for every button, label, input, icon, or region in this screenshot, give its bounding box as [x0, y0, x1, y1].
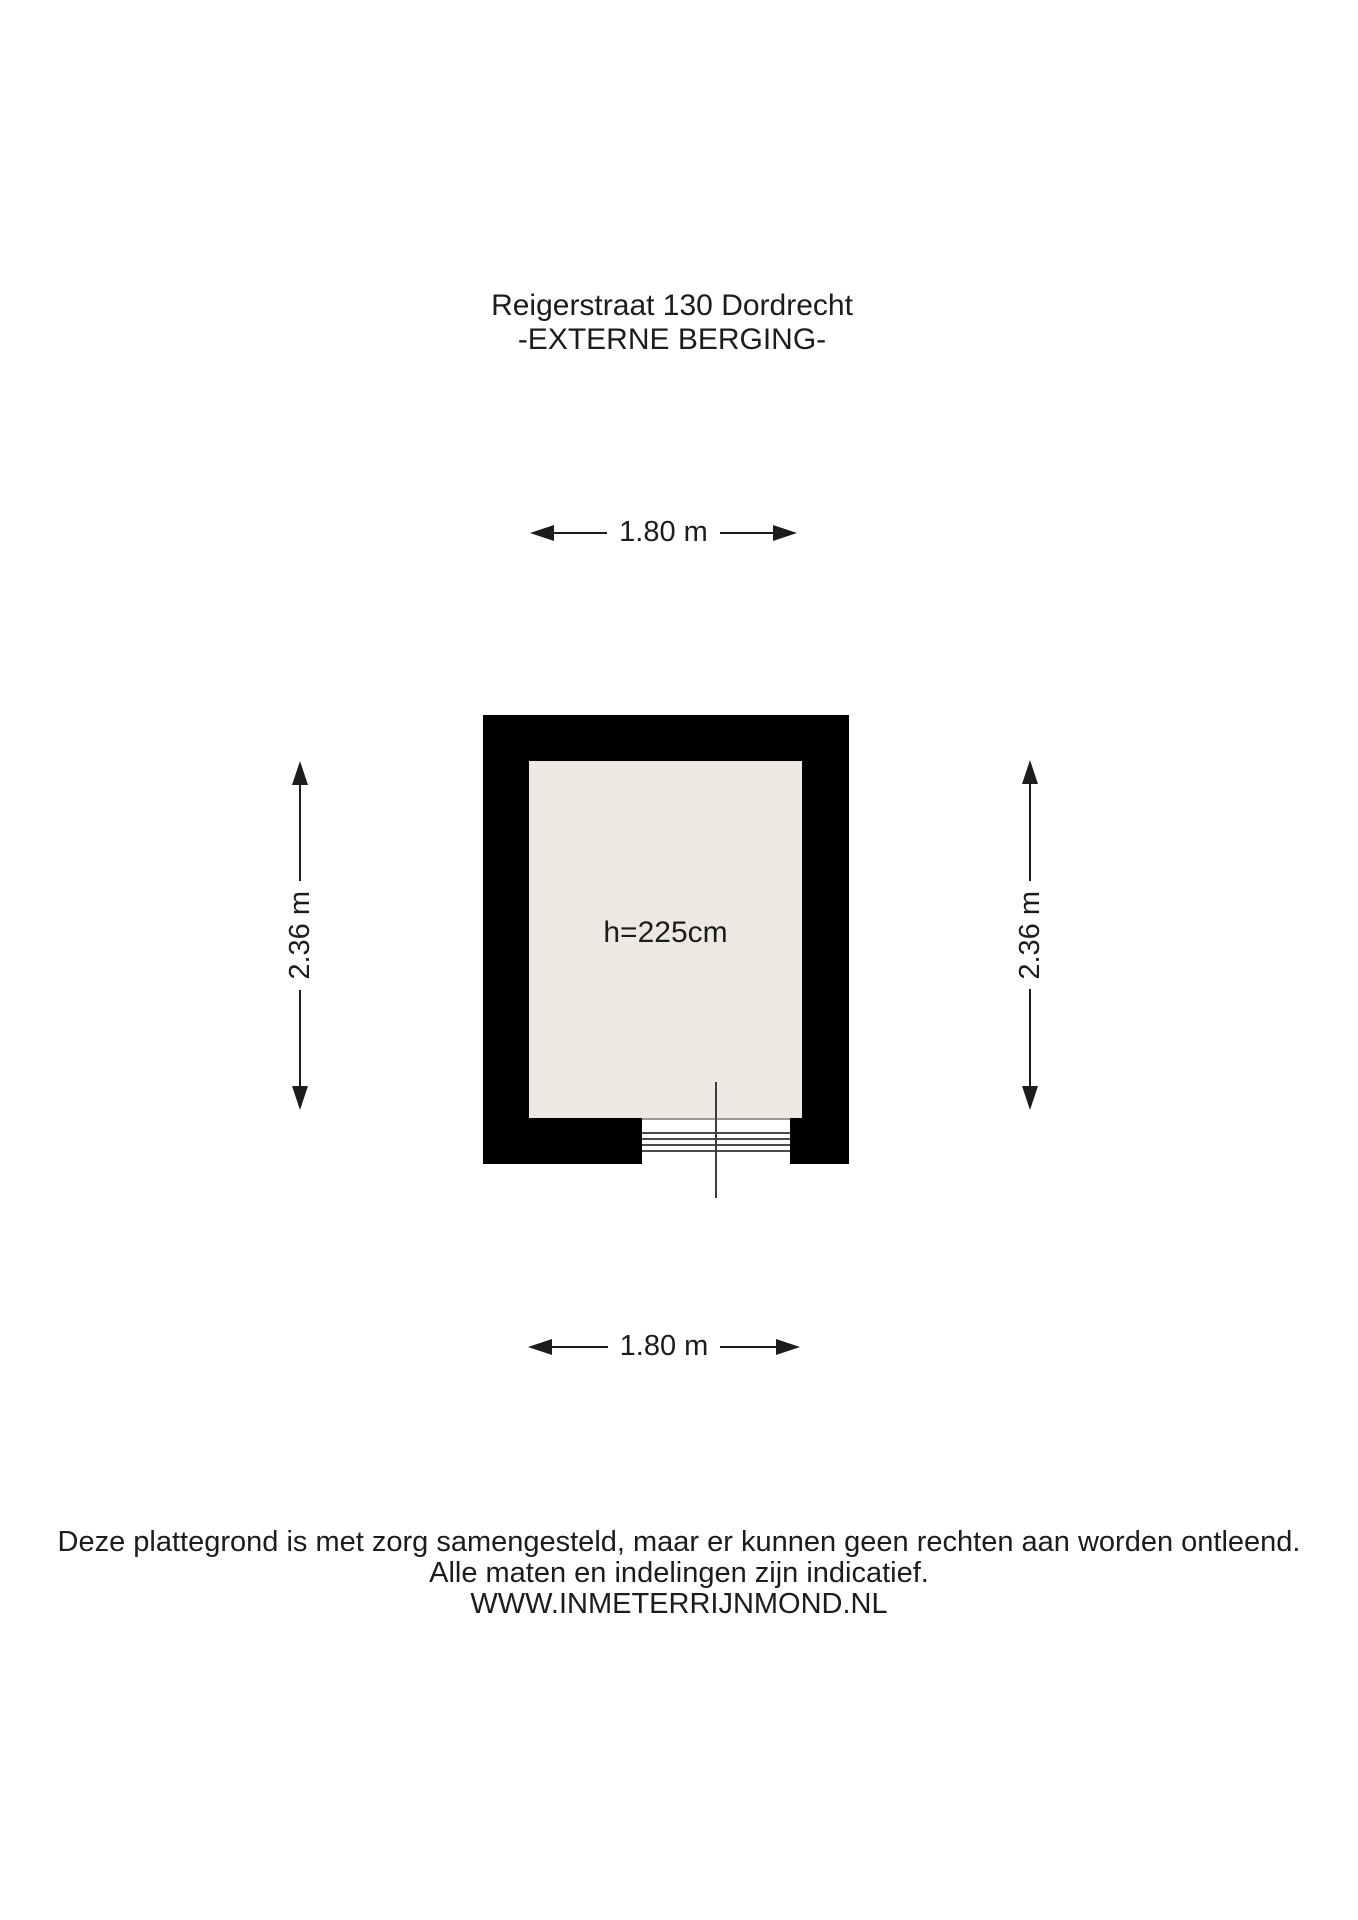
dimension-line — [299, 990, 301, 1086]
title-address: Reigerstraat 130 Dordrecht — [6, 289, 1338, 323]
dimension-line — [720, 1346, 776, 1348]
dimension-line — [720, 532, 773, 534]
page-title: Reigerstraat 130 Dordrecht -EXTERNE BERG… — [6, 289, 1338, 357]
arrow-left-icon — [530, 525, 554, 541]
disclaimer: Deze plattegrond is met zorg samengestel… — [0, 1527, 1358, 1620]
room-floor: h=225cm — [529, 761, 802, 1118]
arrow-right-icon — [776, 1339, 800, 1355]
disclaimer-website: WWW.INMETERRIJNMOND.NL — [0, 1589, 1358, 1620]
door-swing-line — [715, 1082, 717, 1198]
arrow-right-icon — [773, 525, 797, 541]
dimension-line — [552, 1346, 608, 1348]
dimension-bottom-label: 1.80 m — [608, 1330, 721, 1363]
dimension-right-label: 2.36 m — [1014, 881, 1047, 990]
dimension-top: 1.80 m — [530, 525, 797, 541]
dimension-bottom: 1.80 m — [528, 1339, 800, 1355]
disclaimer-line1: Deze plattegrond is met zorg samengestel… — [0, 1527, 1358, 1558]
arrow-up-icon — [292, 761, 308, 785]
dimension-right: 2.36 m — [1015, 760, 1045, 1110]
arrow-down-icon — [1022, 1086, 1038, 1110]
dimension-line — [1029, 784, 1031, 881]
dimension-left-label: 2.36 m — [284, 881, 317, 990]
dimension-line — [554, 532, 607, 534]
arrow-left-icon — [528, 1339, 552, 1355]
disclaimer-line2: Alle maten en indelingen zijn indicatief… — [0, 1558, 1358, 1589]
room-height-label: h=225cm — [603, 916, 727, 950]
arrow-down-icon — [292, 1086, 308, 1110]
dimension-left: 2.36 m — [285, 761, 315, 1110]
title-subtitle: -EXTERNE BERGING- — [6, 323, 1338, 357]
floorplan: h=225cm — [483, 715, 849, 1164]
dimension-line — [299, 785, 301, 881]
floorplan-page: Reigerstraat 130 Dordrecht -EXTERNE BERG… — [0, 0, 1358, 1920]
dimension-top-label: 1.80 m — [607, 516, 720, 549]
dimension-line — [1029, 989, 1031, 1086]
arrow-up-icon — [1022, 760, 1038, 784]
